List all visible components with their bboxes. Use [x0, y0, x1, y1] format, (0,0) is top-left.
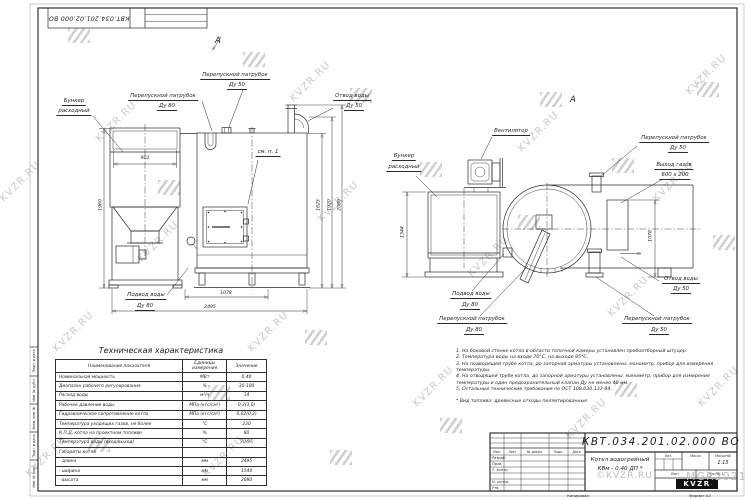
label-water-inlet-front-line1: Подвод воды: [125, 292, 166, 300]
title-block-scale-value: 1:15: [717, 460, 728, 466]
label-bypass-du80-side-line2: Ду 80: [464, 327, 484, 335]
title-block-role-nkontr: Н. контр.: [492, 480, 509, 484]
dim-height-2080: 2080: [337, 199, 342, 211]
table-row: Расход водым³/ч14: [56, 391, 267, 400]
product-name-line2: КВм - 0,40 ДП *: [598, 466, 643, 472]
dim-height-1625: 1625: [317, 199, 322, 211]
label-water-outlet-side-line2: Ду 50: [671, 286, 691, 294]
label-bypass-du50-side-top-line1: Перепускной патрубок: [639, 135, 709, 143]
dim-hopper-width-902: 902: [141, 156, 150, 161]
spec-table-title: Техническая характеристика: [99, 346, 223, 355]
label-hopper-side-line2: расходный: [386, 164, 421, 172]
label-bypass-du50-side-top-line2: Ду 50: [668, 145, 688, 153]
table-row: - ширинамм1544: [56, 466, 267, 475]
dim-width-1544: 1544: [401, 226, 406, 238]
table-row: Рабочее давление водыМПа (кгс/см²)0,3(3,…: [56, 401, 267, 410]
dim-base-1078: 1078: [220, 291, 232, 296]
label-bypass-du50-front-line1: Перепускной патрубок: [200, 72, 270, 80]
kvzr-logo: KVZR: [676, 479, 718, 489]
margin-stamp-podp-i-data-2: Подп. и дата: [32, 434, 36, 457]
title-block-col-data: Дата: [572, 450, 580, 454]
label-water-outlet-front-line1: Отвод воды: [333, 93, 371, 101]
label-hopper-front-line2: расходный: [56, 108, 91, 116]
label-bypass-du80-side-line1: Перепускной патрубок: [437, 316, 507, 324]
table-row: - длинамм2495: [56, 457, 267, 466]
title-block-role-prov: Пров.: [492, 462, 502, 466]
label-bypass-du80-front-line2: Ду 80: [157, 103, 177, 111]
table-row: Температура уходящих газов, не более°С23…: [56, 419, 267, 428]
note-item: 4. На отводящей трубе котла, до запорной…: [456, 374, 735, 387]
title-block-col-docnum: № докум.: [527, 450, 543, 454]
label-water-outlet-side-line1: Отвод воды: [662, 276, 700, 284]
table-row: - высотамм2080: [56, 476, 267, 485]
product-name-line1: Котел водогрейный: [591, 457, 650, 463]
dim-length-2495: 2495: [204, 305, 216, 310]
label-fan: Вентилятор: [492, 128, 530, 136]
label-water-inlet-side-line1: Подвод воды: [450, 291, 491, 299]
technical-notes: 1. На боковой стенке котла в области топ…: [456, 349, 735, 406]
title-block-sheets-label: Листов 1: [709, 472, 724, 476]
label-hopper-front-line1: Бункер: [62, 98, 86, 106]
label-water-inlet-front-line2: Ду 80: [135, 303, 155, 311]
spec-header-value: Значение: [227, 360, 267, 373]
text-layer: КВТ.034.201.02.000 ВО А Бункер расходный…: [0, 0, 750, 500]
label-water-outlet-front-line2: Ду 50: [344, 103, 364, 111]
title-block-role-razrab: Разраб.: [492, 456, 506, 460]
spec-header-name: Наименование показателя: [56, 360, 183, 373]
label-bypass-du50-side-bottom-line1: Перепускной патрубок: [622, 316, 692, 324]
title-block-doc-number: КВТ.034.201.02.000 ВО: [582, 436, 740, 448]
title-block-col-izm: Изм.: [493, 450, 501, 454]
spec-header-row: Наименование показателя Единицы измерени…: [56, 360, 267, 373]
title-block-col-list: Лист: [508, 450, 516, 454]
note-item: 5. Остальные технические требования по О…: [456, 387, 735, 393]
label-bypass-du50-front-line2: Ду 50: [227, 82, 247, 90]
label-gas-outlet-line2: 600 x 200: [659, 172, 690, 180]
label-gas-outlet-line1: Выход газов: [654, 162, 693, 170]
corner-stamp-doc-number: КВТ.034.201.02.000 ВО: [49, 15, 130, 22]
table-row: Габариты котла: [56, 448, 267, 457]
label-bypass-du50-side-bottom-line2: Ду 50: [649, 327, 669, 335]
title-block-lit-label: Лит.: [665, 454, 672, 458]
title-block-mass-label: Масса: [690, 454, 700, 458]
table-row: Температура воды (вход/выход)°С70/95: [56, 438, 267, 447]
label-bypass-du80-front-line1: Перепускной патрубок: [128, 93, 198, 101]
drawing-sheet: KVZR.RU KVZR.RU KVZR.RU KVZR.RU KVZR.RU …: [0, 0, 750, 500]
note-item: 3. На подводящей трубе котла, до запорно…: [456, 362, 735, 375]
title-block-scale-label: Масштаб: [715, 454, 730, 458]
title-block-sheet-label: Лист: [671, 472, 679, 476]
dim-height-1960: 1960: [99, 199, 104, 211]
spec-table: Наименование показателя Единицы измерени…: [55, 359, 267, 486]
table-row: Диапазон рабочего регулирования%30-100: [56, 382, 267, 391]
label-water-inlet-side-line2: Ду 80: [460, 302, 480, 310]
margin-stamp-vzam-inv: Взам. инв. №: [32, 406, 36, 429]
margin-stamp-inv-dubl: Инв. № дубл.: [32, 378, 36, 401]
format-label: Формат А3: [689, 493, 711, 498]
label-see-note-1: см. п. 1: [256, 149, 281, 157]
label-hopper-side-line1: Бункер: [392, 153, 416, 161]
table-row: Номинальная мощностьМВт0,40: [56, 373, 267, 382]
side-view-label: А: [570, 95, 576, 105]
fuel-type-note: * Вид топлива: древесные отходы пеллетир…: [456, 399, 735, 405]
dim-height-1920: 1920: [327, 199, 332, 211]
table-row: Гидравлическое сопротивление котлаМПа (к…: [56, 410, 267, 419]
title-block-role-utv: Утв.: [492, 486, 500, 490]
front-view-arrow-label: А: [215, 36, 221, 46]
table-row: К.П.Д. котла на проектном топливе%80: [56, 429, 267, 438]
title-block-role-tkontr: Т. контр.: [492, 468, 509, 472]
dim-side-1078: 1078: [649, 230, 654, 242]
spec-header-units: Единицы измерения: [183, 360, 227, 373]
margin-stamp-inv-podl: Инв. № подл.: [32, 464, 36, 487]
title-block-col-podp: Подп.: [554, 450, 564, 454]
copied-label: Копировал: [567, 493, 589, 498]
margin-stamp-podp-i-data-1: Подп. и дата: [32, 349, 36, 372]
